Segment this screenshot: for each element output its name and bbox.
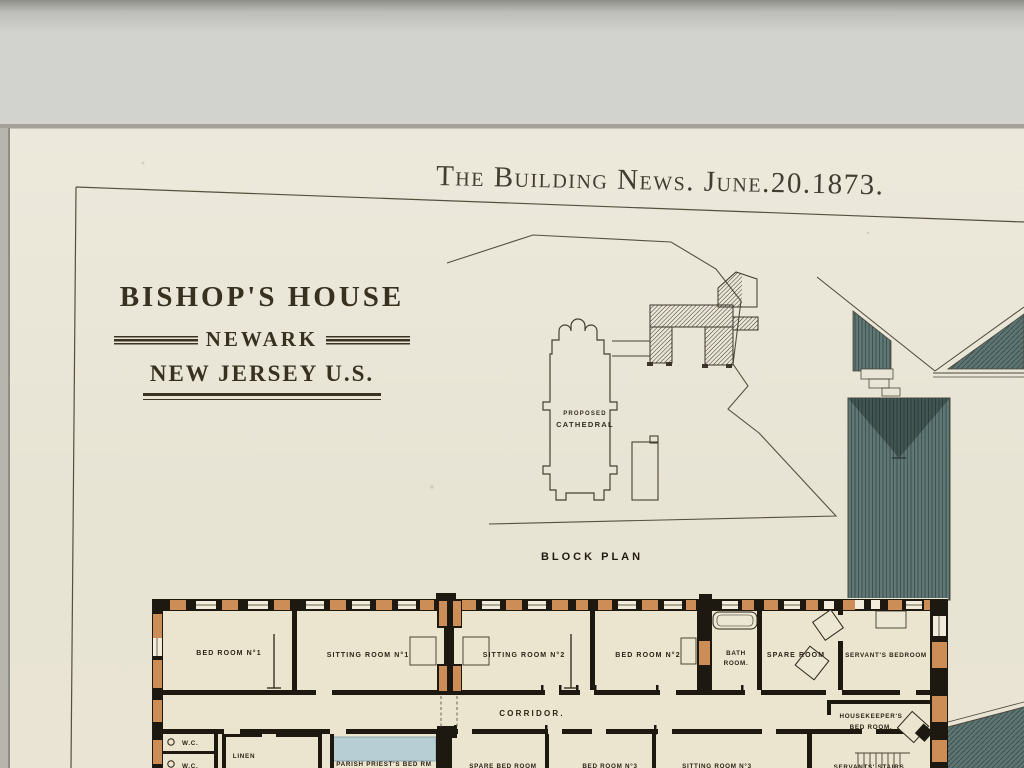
bishops-house-footprint xyxy=(647,272,758,368)
room-label-linen: LINEN xyxy=(233,753,255,760)
cathedral-label-line1: PROPOSED xyxy=(563,411,607,417)
room-label-sitting2: SITTING ROOM N°2 xyxy=(483,651,566,659)
corridor-label: CORRIDOR. xyxy=(499,709,565,718)
room-label-bath-2: ROOM. xyxy=(724,660,749,667)
plate-location: NEW JERSEY U.S. xyxy=(96,361,428,387)
roof-hip-triangle-right xyxy=(948,314,1024,369)
skylight-blue-wash xyxy=(332,737,436,761)
plate-subtitle: NEWARK xyxy=(206,327,319,352)
room-label-wc-upper: W.C. xyxy=(182,740,198,747)
block-plan: PROPOSED CATHEDRAL BLOCK PLAN xyxy=(447,235,836,563)
window-seat xyxy=(876,611,906,628)
block-plan-caption: BLOCK PLAN xyxy=(541,551,643,563)
ornament-rule-left xyxy=(114,335,198,345)
plate-subtitle-row: NEWARK xyxy=(96,327,428,352)
room-label-sitting3: SITTING ROOM N°3 xyxy=(682,762,752,768)
room-label-bed2: BED ROOM N°2 xyxy=(615,651,680,659)
roof-bottom-right xyxy=(948,707,1024,768)
plate-title: BISHOP'S HOUSE xyxy=(96,281,428,314)
room-label-bed3: BED ROOM N°3 xyxy=(582,762,637,768)
title-block: BISHOP'S HOUSE NEWARK NEW JERSEY U.S. xyxy=(96,281,428,402)
room-label-servants-bedroom: SERVANT'S BEDROOM xyxy=(845,652,927,659)
site-boundary xyxy=(447,235,836,524)
cathedral-outline xyxy=(543,319,617,500)
room-label-bath-1: BATH xyxy=(726,650,746,657)
room-label-sitting1: SITTING ROOM N°1 xyxy=(327,651,410,659)
roof-strip-left xyxy=(853,311,891,371)
room-label-wc-lower: W.C. xyxy=(182,763,198,768)
room-label-spare-bed: SPARE BED ROOM xyxy=(469,763,536,768)
room-label-housekeeper-2: BED ROOM. xyxy=(850,724,893,731)
room-label-spare: SPARE ROOM xyxy=(767,652,825,659)
room-label-parish: PARISH PRIEST'S BED RM xyxy=(336,761,432,768)
ornament-underline xyxy=(143,393,381,400)
framed-print-photo: PROPOSED CATHEDRAL BLOCK PLAN xyxy=(0,0,1024,768)
room-label-bed1: BED ROOM N°1 xyxy=(196,649,261,657)
cloister-link xyxy=(612,341,650,356)
bath-tub xyxy=(713,612,757,629)
room-label-servants-stairs: SERVANTS' STAIRS xyxy=(834,764,905,768)
room-label-housekeeper-1: HOUSEKEEPER'S xyxy=(839,713,902,720)
roof-ledge xyxy=(861,369,893,379)
ornament-rule-right xyxy=(326,335,410,345)
floor-plan: BED ROOM N°1 SITTING ROOM N°1 SITTING RO… xyxy=(152,593,948,768)
cathedral-label-line2: CATHEDRAL xyxy=(556,420,614,429)
cathedral-side-tower xyxy=(632,436,658,500)
